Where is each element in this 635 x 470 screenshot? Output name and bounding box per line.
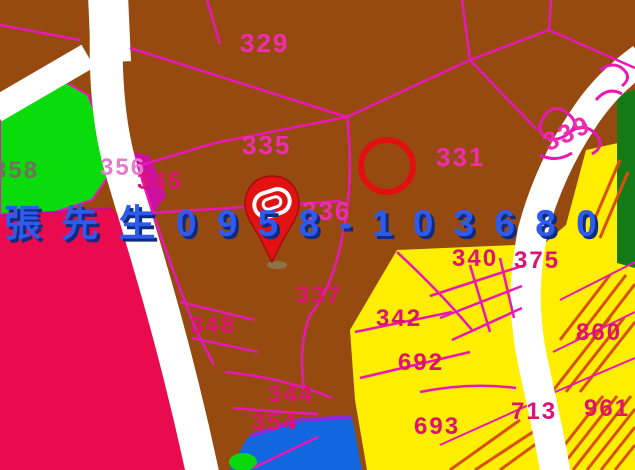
parcel-label-358: 358 — [0, 159, 39, 183]
parcel-label-340: 340 — [452, 247, 498, 271]
parcel-label-342: 342 — [376, 307, 422, 331]
parcel-label-344: 344 — [268, 383, 314, 407]
parcel-label-961: 961 — [584, 397, 630, 421]
parcel-label-860: 860 — [576, 321, 622, 345]
parcel-label-339: 339 — [539, 111, 595, 155]
parcel-label-329: 329 — [240, 30, 289, 56]
parcel-label-356: 356 — [100, 156, 146, 180]
map-viewport[interactable]: 329 335 331 339 336 345 356 358 337 348 … — [0, 0, 635, 470]
parcel-label-331: 331 — [436, 144, 485, 170]
parcel-label-354: 354 — [252, 411, 298, 435]
parcel-label-337: 337 — [296, 284, 342, 308]
parcel-label-713: 713 — [511, 400, 557, 424]
parcel-label-375: 375 — [514, 249, 560, 273]
parcel-label-335: 335 — [242, 132, 291, 158]
parcel-label-348: 348 — [190, 314, 236, 338]
watermark-contact-text: 張 先 生 0 9 5 8 - 1 0 3 6 8 0 — [4, 204, 635, 245]
parcel-label-693: 693 — [414, 415, 460, 439]
parcel-label-692: 692 — [398, 351, 444, 375]
